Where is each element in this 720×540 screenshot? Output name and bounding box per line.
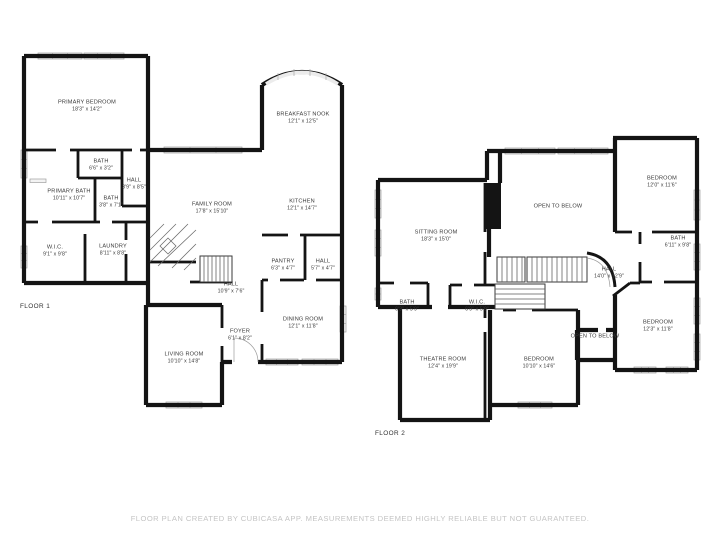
floor1-windows <box>21 53 346 408</box>
floor2-plan <box>375 138 700 420</box>
floor1-interior-walls <box>24 150 342 362</box>
floor2-stairs-icon <box>495 257 587 309</box>
floor-plan-page: PRIMARY BEDROOM18'3" x 14'2" BATH6'6" x … <box>0 0 720 540</box>
floor1-stairs-icon <box>200 256 232 282</box>
floor2-curved-wall <box>587 253 615 287</box>
floor1-label: FLOOR 1 <box>20 303 50 310</box>
floorplan-canvas <box>0 0 720 540</box>
floor2-label: FLOOR 2 <box>375 430 405 437</box>
floor1-nook-arch-window <box>266 73 338 85</box>
closet-shelf <box>30 179 46 183</box>
footer-disclaimer: FLOOR PLAN CREATED BY CUBICASA APP. MEAS… <box>0 514 720 523</box>
floor1-entry-door-icon <box>234 338 258 362</box>
floor2-chimney-block <box>486 183 501 229</box>
floor1-outer-walls <box>24 56 342 405</box>
floor1-plan <box>21 53 346 408</box>
